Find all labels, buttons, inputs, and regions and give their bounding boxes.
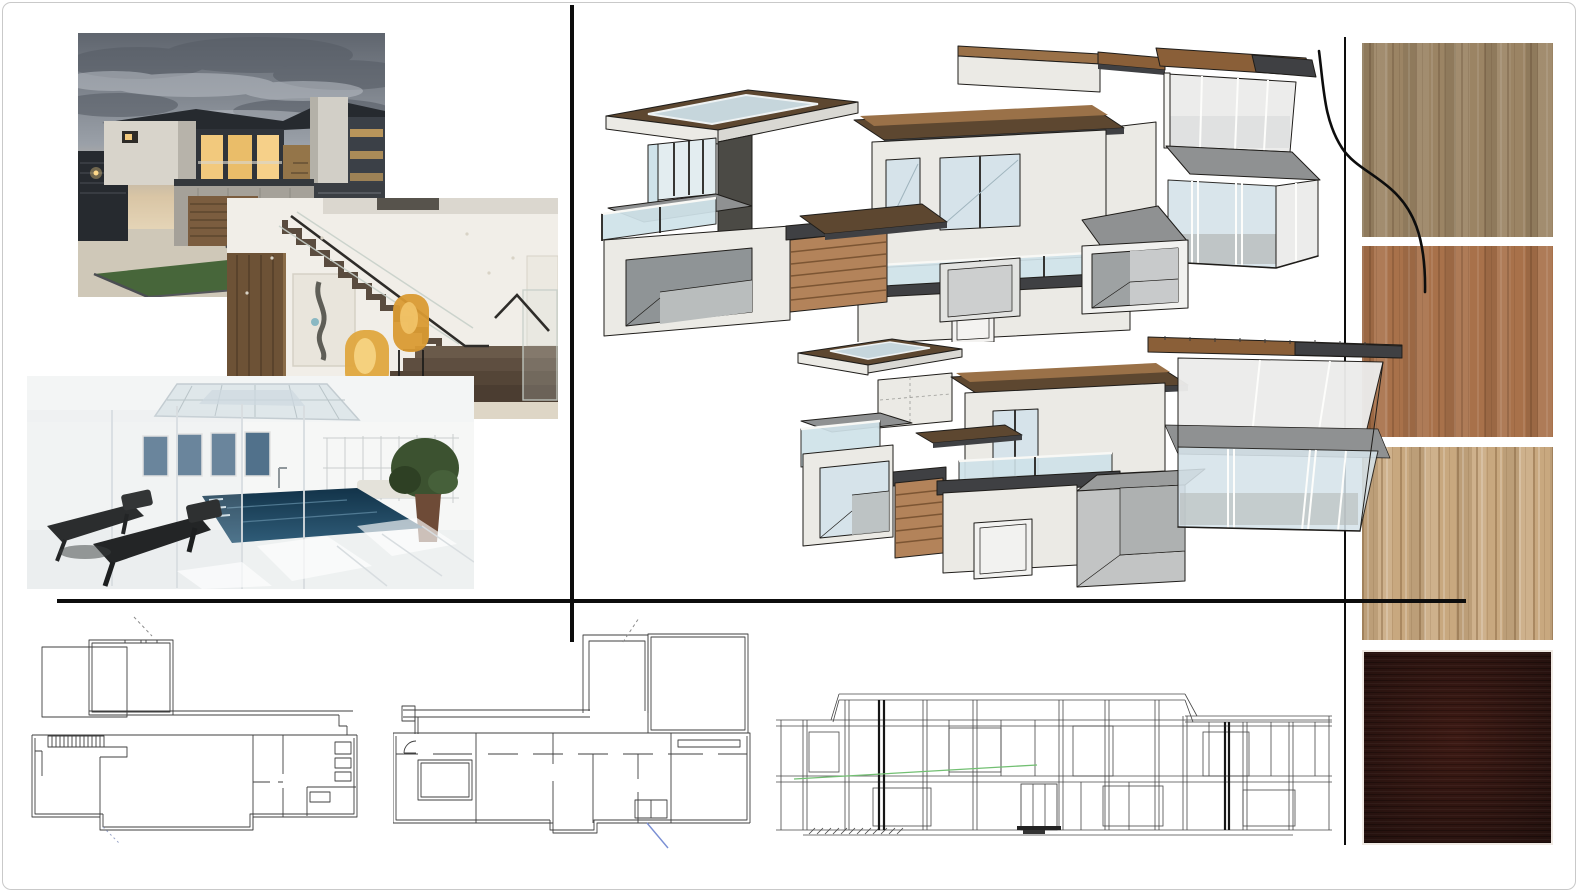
wood-swatch-espresso (1362, 650, 1553, 845)
rear-parapet (958, 46, 1165, 92)
moodboard-canvas (0, 0, 1578, 892)
wood-panel-wall (227, 253, 286, 379)
elevation-door (1017, 784, 1061, 834)
gate-light (94, 171, 99, 176)
divider-vertical-main (570, 5, 574, 642)
door-cube (940, 258, 1020, 322)
elevation-bold-posts (879, 700, 1229, 830)
indoor-pool-photo (27, 376, 474, 589)
terrace-garage (1082, 206, 1188, 314)
sketchup-model-view-lower (790, 325, 1405, 610)
glass-pavilion-lower (1148, 336, 1402, 531)
floor-plan-center (393, 616, 785, 872)
annotation-leader-curve (1240, 20, 1440, 320)
sketchup-model-view-upper (600, 30, 1332, 342)
floor-plan-left (30, 616, 382, 856)
left-roof (798, 339, 962, 375)
left-lower-wall (803, 445, 893, 546)
wireframe-elevation (773, 662, 1343, 852)
